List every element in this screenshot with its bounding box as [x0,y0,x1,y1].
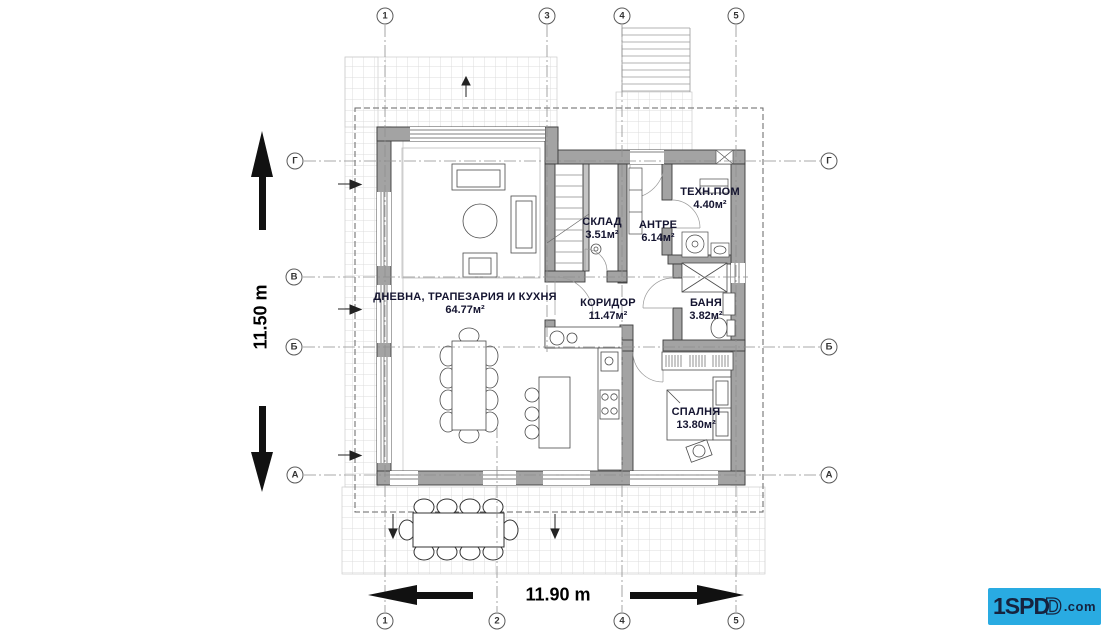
room-area: 13.80м² [672,419,721,432]
room-area: 11.47м² [580,310,636,323]
axis-marker-top-4: 4 [614,8,631,25]
axis-marker-right-g: Г [821,153,838,170]
logo-text: 1SPD [993,593,1049,620]
axis-marker-left-b: Б [286,339,303,356]
room-label-storage: СКЛАД 3.51м² [582,216,622,242]
axis-marker-bottom-4: 4 [614,613,631,630]
room-name: СКЛАД [582,216,622,229]
axis-marker-right-a: А [821,467,838,484]
axis-marker-right-b: Б [821,339,838,356]
room-label-living: ДНЕВНА, ТРАПЕЗАРИЯ И КУХНЯ 64.77м² [373,291,556,317]
axis-marker-bottom-2: 2 [489,613,506,630]
room-label-entry: АНТРЕ 6.14м² [639,219,677,245]
axis-marker-left-a: А [287,467,304,484]
room-label-bath: БАНЯ 3.82м² [689,297,722,323]
room-name: КОРИДОР [580,297,636,310]
logo-overlap-d: D [1045,593,1062,620]
room-area: 4.40м² [680,199,740,212]
dimension-vertical-label: 11.50 m [251,284,272,349]
axis-marker-bottom-5: 5 [728,613,745,630]
room-name: БАНЯ [689,297,722,310]
axis-marker-left-v: В [286,269,303,286]
room-area: 64.77м² [373,304,556,317]
axis-marker-top-3: 3 [539,8,556,25]
room-name: АНТРЕ [639,219,677,232]
room-name: ДНЕВНА, ТРАПЕЗАРИЯ И КУХНЯ [373,291,556,304]
room-area: 6.14м² [639,232,677,245]
axis-marker-top-1: 1 [377,8,394,25]
axis-marker-left-g: Г [287,153,304,170]
room-area: 3.82м² [689,310,722,323]
room-name: ТЕХН.ПОМ [680,186,740,199]
room-name: СПАЛНЯ [672,406,721,419]
room-label-corridor: КОРИДОР 11.47м² [580,297,636,323]
logo-domain-text: .com [1064,599,1096,614]
floor-plan-page: 1 3 4 5 1 2 4 5 Г В Б А Г Б А ДНЕВНА, ТР… [0,0,1120,632]
room-label-bedroom: СПАЛНЯ 13.80м² [672,406,721,432]
floor-plan-drawing [0,0,1120,632]
dimension-horizontal-label: 11.90 m [525,585,590,606]
axis-marker-top-5: 5 [728,8,745,25]
shaft-box [682,263,727,292]
room-area: 3.51м² [582,229,622,242]
exterior-steps [622,28,690,92]
logo: 1SPD D .com [988,588,1101,625]
axis-marker-bottom-1: 1 [377,613,394,630]
room-label-tech: ТЕХН.ПОМ 4.40м² [680,186,740,212]
